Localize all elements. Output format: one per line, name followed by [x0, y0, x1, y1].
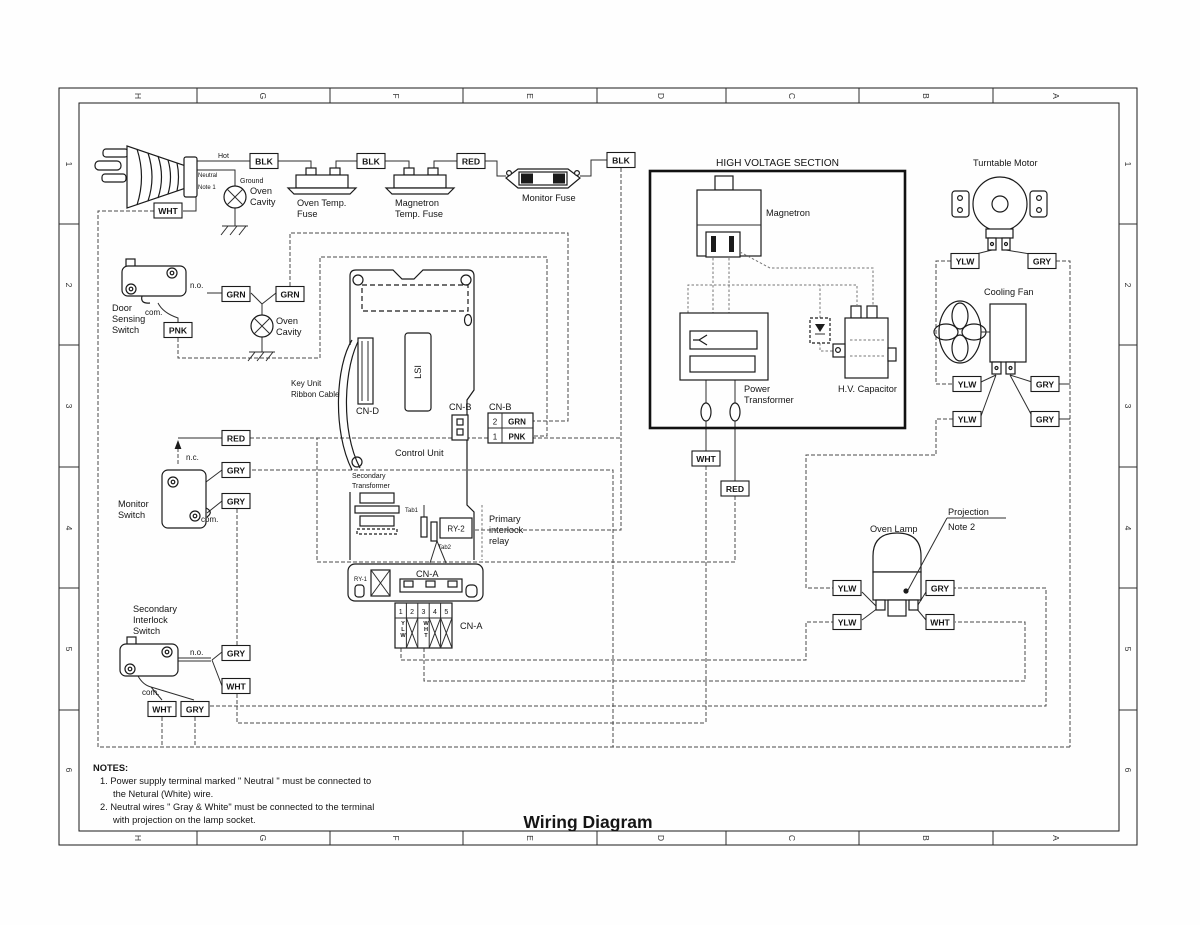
high-voltage-section: HIGH VOLTAGE SECTION Magnetron Power [650, 158, 905, 428]
cn-d-connector [358, 338, 373, 404]
svg-text:D: D [656, 835, 666, 841]
wire-label-ylw-lamp-2: YLW [833, 615, 861, 630]
svg-text:BLK: BLK [612, 156, 630, 166]
svg-text:4: 4 [1123, 526, 1133, 531]
wire-label-gry-1: GRY [222, 463, 250, 478]
door-switch-com: com. [145, 308, 162, 317]
svg-text:H: H [133, 835, 143, 841]
wire-label-gry-fan-2: GRY [1031, 412, 1059, 427]
oven-lamp-label: Oven Lamp [870, 524, 918, 534]
plug-ground-label: Ground [240, 178, 263, 185]
svg-text:with projection on the lamp so: with projection on the lamp socket. [112, 815, 256, 825]
wire-label-red-1: RED [457, 154, 485, 169]
monitor-switch: n.c. com. Monitor Switch [118, 453, 218, 528]
svg-text:4: 4 [64, 526, 74, 531]
svg-text:PNK: PNK [509, 433, 526, 442]
svg-text:Key Unit: Key Unit [291, 379, 322, 388]
svg-text:G: G [258, 93, 268, 100]
svg-text:D: D [656, 93, 666, 99]
svg-text:3: 3 [64, 404, 74, 409]
wire-label-gry-fan-1: GRY [1031, 377, 1059, 392]
magnetron-label: Magnetron [766, 208, 810, 218]
svg-text:F: F [391, 835, 401, 840]
notes-block: NOTES: 1. Power supply terminal marked "… [93, 763, 374, 825]
turntable-motor: Turntable Motor [952, 158, 1047, 250]
wire-label-gry-lamp: GRY [926, 581, 954, 596]
wire-label-wht-lamp: WHT [926, 615, 954, 630]
svg-text:Ribbon Cable: Ribbon Cable [291, 390, 340, 399]
svg-text:YLW: YLW [958, 415, 978, 425]
svg-text:1: 1 [399, 609, 403, 616]
svg-text:B: B [921, 835, 931, 841]
cn-b-pin-table: 2 GRN 1 PNK [488, 413, 533, 443]
oven-temp-fuse: Oven Temp. Fuse [288, 168, 356, 219]
svg-text:Temp. Fuse: Temp. Fuse [395, 209, 443, 219]
svg-text:F: F [391, 93, 401, 98]
lsi-label: LSI [413, 365, 423, 379]
svg-text:GRY: GRY [227, 466, 246, 476]
svg-text:Power: Power [744, 384, 770, 394]
svg-text:interlock: interlock [489, 525, 524, 535]
projection-note2-label: Note 2 [948, 522, 975, 532]
svg-text:3: 3 [422, 609, 426, 616]
svg-text:WHT: WHT [226, 682, 246, 692]
svg-text:1: 1 [1123, 162, 1133, 167]
wire-label-gry-turntable: GRY [1028, 254, 1056, 269]
svg-text:WHT: WHT [152, 705, 172, 715]
diagram-title: Wiring Diagram [523, 812, 652, 832]
svg-text:C: C [787, 93, 797, 99]
svg-text:GRN: GRN [508, 418, 526, 427]
svg-text:Magnetron: Magnetron [395, 198, 439, 208]
svg-text:RED: RED [462, 157, 480, 167]
interlock-switch-no: n.o. [190, 648, 203, 657]
oven-cavity-ground-top: Oven Cavity [221, 186, 276, 235]
svg-text:GRN: GRN [226, 290, 245, 300]
cn-b-label-table: CN-B [489, 402, 511, 412]
svg-text:WHT: WHT [696, 454, 716, 464]
svg-text:C: C [787, 835, 797, 841]
svg-text:the Netural (White) wire.: the Netural (White) wire. [113, 789, 213, 799]
wire-label-red-transformer: RED [721, 481, 749, 496]
svg-text:BLK: BLK [362, 157, 380, 167]
svg-text:YLW: YLW [838, 618, 858, 628]
power-transformer: Power Transformer [680, 313, 794, 421]
svg-text:Secondary: Secondary [133, 604, 177, 614]
svg-text:WHT: WHT [423, 621, 429, 639]
plug-hot-label: Hot [218, 153, 229, 160]
hv-capacitor: H.V. Capacitor [833, 306, 897, 394]
hv-capacitor-label: H.V. Capacitor [838, 384, 897, 394]
hv-diode [810, 318, 830, 343]
svg-text:Door: Door [112, 303, 132, 313]
svg-text:YLW: YLW [958, 380, 978, 390]
svg-text:2: 2 [493, 418, 498, 427]
magnetron-temp-fuse: Magnetron Temp. Fuse [386, 168, 454, 219]
projection-label: Projection [948, 507, 989, 517]
wire-label-ylw-turntable: YLW [951, 254, 979, 269]
svg-text:B: B [921, 93, 931, 99]
wire-label-ylw-lamp-1: YLW [833, 581, 861, 596]
wire-label-grn-2: GRN [276, 287, 304, 302]
wire-label-blk-3: BLK [607, 153, 635, 168]
svg-text:A: A [1051, 835, 1061, 841]
svg-text:Secondary: Secondary [352, 473, 386, 480]
wire-label-red-monitor: RED [222, 431, 250, 446]
svg-text:1: 1 [64, 162, 74, 167]
wire-label-ylw-fan-2: YLW [953, 412, 981, 427]
secondary-interlock-switch: n.o. com. Secondary Interlock Switch [120, 604, 203, 697]
oven-cavity-ground-door: Oven Cavity [248, 315, 302, 361]
svg-text:GRN: GRN [280, 290, 299, 300]
wire-label-gry-2: GRY [222, 494, 250, 509]
wire-label-ylw-fan-1: YLW [953, 377, 981, 392]
svg-text:Cavity: Cavity [250, 197, 276, 207]
svg-text:6: 6 [64, 768, 74, 773]
svg-text:YLW: YLW [400, 621, 406, 639]
svg-text:relay: relay [489, 536, 509, 546]
svg-text:Oven: Oven [250, 186, 272, 196]
svg-text:H: H [133, 93, 143, 99]
ry1-label: RY-1 [354, 577, 368, 583]
svg-text:4: 4 [433, 609, 437, 616]
door-switch-no: n.o. [190, 281, 203, 290]
cn-a-label-table: CN-A [460, 621, 483, 631]
plug-neutral-label: Neutral [198, 173, 217, 179]
svg-text:Transformer: Transformer [744, 395, 794, 405]
plug-note1-label: Note 1 [198, 185, 216, 191]
svg-text:RED: RED [726, 484, 744, 494]
svg-text:2: 2 [410, 609, 414, 616]
wire-label-gry-3: GRY [222, 646, 250, 661]
wire-label-wht-plug: WHT [154, 203, 182, 218]
ry2-label: RY-2 [447, 525, 465, 534]
control-unit: Key Unit Ribbon Cable CN-D LSI CN-B CN-B… [291, 270, 533, 648]
svg-text:E: E [525, 835, 535, 841]
svg-text:GRY: GRY [1033, 257, 1052, 267]
notes-heading: NOTES: [93, 763, 128, 773]
svg-text:2: 2 [64, 283, 74, 288]
svg-text:YLW: YLW [956, 257, 976, 267]
wire-label-wht-interlock-com: WHT [148, 702, 176, 717]
wire-color-labels: BLK BLK RED BLK WHT GRN GRN PNK RED GRY … [148, 153, 1059, 717]
svg-text:GRY: GRY [1036, 380, 1055, 390]
magnetron: Magnetron [697, 176, 810, 257]
monitor-fuse: Monitor Fuse [506, 169, 580, 203]
svg-text:2. Neutral wires " Gray & Whi: 2. Neutral wires " Gray & White" must be… [100, 802, 374, 812]
monitor-switch-nc: n.c. [186, 453, 199, 462]
svg-text:Monitor Fuse: Monitor Fuse [522, 193, 576, 203]
tab1-label: Tab1 [405, 508, 419, 514]
svg-text:5: 5 [1123, 647, 1133, 652]
svg-text:Primary: Primary [489, 514, 521, 524]
svg-text:GRY: GRY [1036, 415, 1055, 425]
interlock-switch-com: com. [142, 688, 159, 697]
svg-text:E: E [525, 93, 535, 99]
monitor-switch-com: com. [201, 515, 218, 524]
svg-text:YLW: YLW [838, 584, 858, 594]
svg-text:Oven Temp.: Oven Temp. [297, 198, 346, 208]
svg-text:6: 6 [1123, 768, 1133, 773]
oven-lamp: Oven Lamp Projection Note 2 [870, 507, 1006, 616]
svg-text:2: 2 [1123, 283, 1133, 288]
cn-a-label-strip: CN-A [416, 569, 439, 579]
svg-text:PNK: PNK [169, 326, 188, 336]
svg-text:A: A [1051, 93, 1061, 99]
svg-text:GRY: GRY [227, 497, 246, 507]
svg-text:Switch: Switch [133, 626, 160, 636]
wire-label-pnk: PNK [164, 323, 192, 338]
svg-text:1: 1 [493, 433, 498, 442]
wire-label-wht-transformer: WHT [692, 451, 720, 466]
turntable-motor-label: Turntable Motor [973, 158, 1038, 168]
svg-text:Monitor: Monitor [118, 499, 149, 509]
svg-text:BLK: BLK [255, 157, 273, 167]
tab2-label: Tab2 [438, 545, 452, 551]
svg-text:Oven: Oven [276, 316, 298, 326]
cn-b-label-left: CN-B [449, 402, 471, 412]
svg-text:Cavity: Cavity [276, 327, 302, 337]
svg-text:1. Power supply terminal mark: 1. Power supply terminal marked " Neutra… [100, 776, 371, 786]
secondary-transformer-symbol [355, 493, 399, 534]
wiring-diagram-canvas: H G F E D C B A H G F E D C B A 1 2 3 4 … [0, 0, 1200, 925]
wire-label-blk-2: BLK [357, 154, 385, 169]
svg-text:Fuse: Fuse [297, 209, 317, 219]
svg-text:3: 3 [1123, 404, 1133, 409]
svg-text:GRY: GRY [227, 649, 246, 659]
svg-text:RED: RED [227, 434, 245, 444]
cn-d-label: CN-D [356, 406, 379, 416]
svg-text:Switch: Switch [112, 325, 139, 335]
svg-text:Transformer: Transformer [352, 483, 391, 490]
svg-text:GRY: GRY [931, 584, 950, 594]
svg-text:5: 5 [64, 647, 74, 652]
svg-text:WHT: WHT [930, 618, 950, 628]
cn-a-pin-table: 1 2 3 4 5 YLW WHT [395, 603, 452, 648]
wire-label-gry-interlock-com: GRY [181, 702, 209, 717]
svg-text:Switch: Switch [118, 510, 145, 520]
wire-label-blk-1: BLK [250, 154, 278, 169]
svg-text:WHT: WHT [158, 206, 178, 216]
cooling-fan: Cooling Fan [934, 287, 1034, 374]
hv-section-label: HIGH VOLTAGE SECTION [716, 158, 839, 169]
svg-text:Interlock: Interlock [133, 615, 168, 625]
wire-label-wht-interlock-no: WHT [222, 679, 250, 694]
wire-label-grn-1: GRN [222, 287, 250, 302]
svg-text:GRY: GRY [186, 705, 205, 715]
cooling-fan-label: Cooling Fan [984, 287, 1034, 297]
control-unit-label: Control Unit [395, 448, 444, 458]
projection-terminal-dot [903, 588, 908, 593]
svg-text:5: 5 [444, 609, 448, 616]
svg-text:G: G [258, 835, 268, 842]
svg-text:Sensing: Sensing [112, 314, 145, 324]
wiring-diagram-page: H G F E D C B A H G F E D C B A 1 2 3 4 … [0, 0, 1200, 925]
